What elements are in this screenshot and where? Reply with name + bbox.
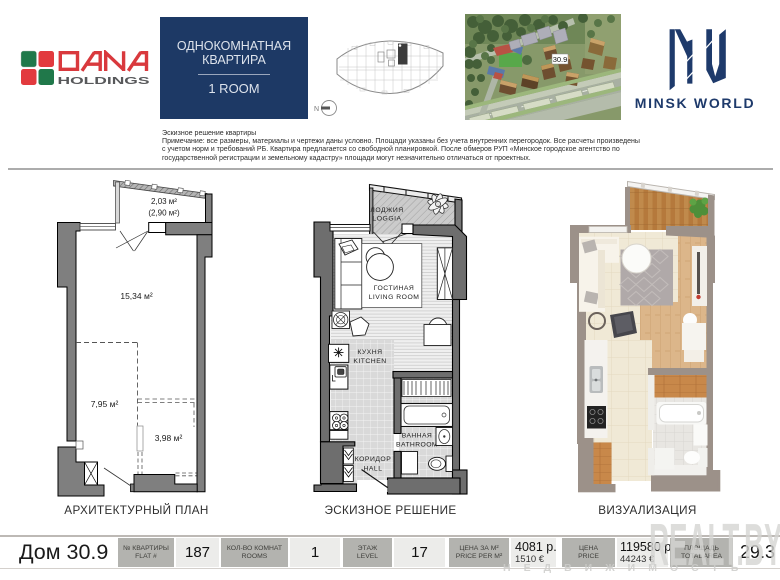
svg-text:ГОСТИНАЯ: ГОСТИНАЯ	[374, 285, 415, 292]
svg-text:15,34 м²: 15,34 м²	[120, 291, 152, 301]
svg-text:КОРИДОР: КОРИДОР	[355, 456, 392, 463]
svg-text:HALL: HALL	[363, 466, 382, 473]
svg-text:30.9: 30.9	[553, 55, 568, 64]
svg-text:3,98 м²: 3,98 м²	[155, 433, 183, 443]
svg-text:ЛОДЖИЯ: ЛОДЖИЯ	[370, 207, 403, 214]
svg-text:LOGGIA: LOGGIA	[372, 216, 401, 223]
svg-text:7,95 м²: 7,95 м²	[91, 399, 119, 409]
svg-text:BATHROOM: BATHROOM	[396, 442, 438, 449]
svg-text:LIVING ROOM: LIVING ROOM	[369, 294, 420, 301]
svg-text:ВАННАЯ: ВАННАЯ	[402, 433, 433, 440]
svg-text:(2,90 м²): (2,90 м²)	[148, 209, 180, 218]
svg-text:HOLDINGS: HOLDINGS	[58, 75, 150, 86]
svg-text:N: N	[314, 106, 319, 113]
svg-text:KITCHEN: KITCHEN	[353, 358, 386, 365]
svg-text:КУХНЯ: КУХНЯ	[357, 349, 382, 356]
svg-text:2,03 м²: 2,03 м²	[151, 197, 177, 206]
